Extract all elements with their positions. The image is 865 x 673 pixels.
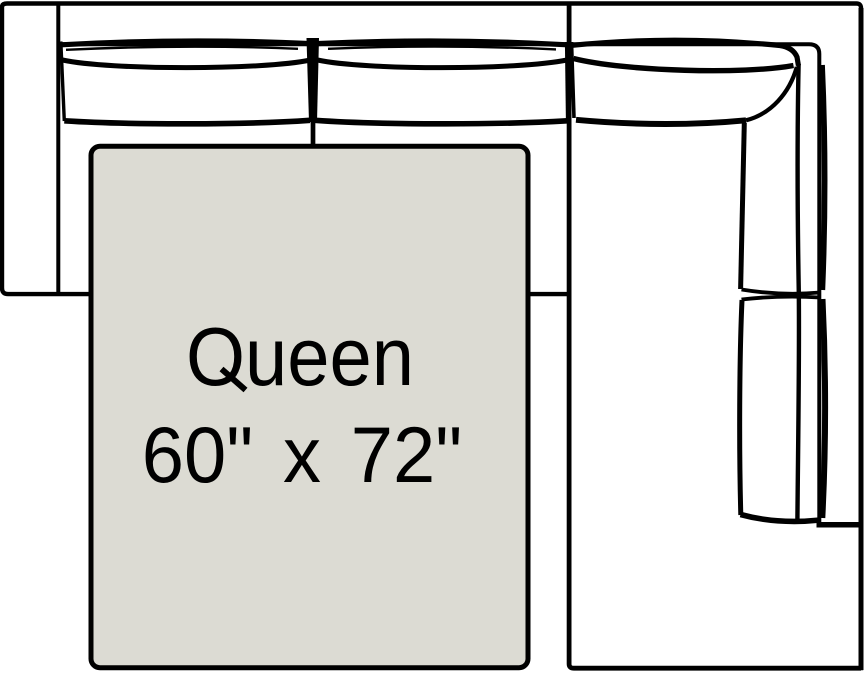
svg-text:60" x 72": 60" x 72" <box>142 412 462 500</box>
svg-text:Oueen: Oueen <box>186 310 414 403</box>
